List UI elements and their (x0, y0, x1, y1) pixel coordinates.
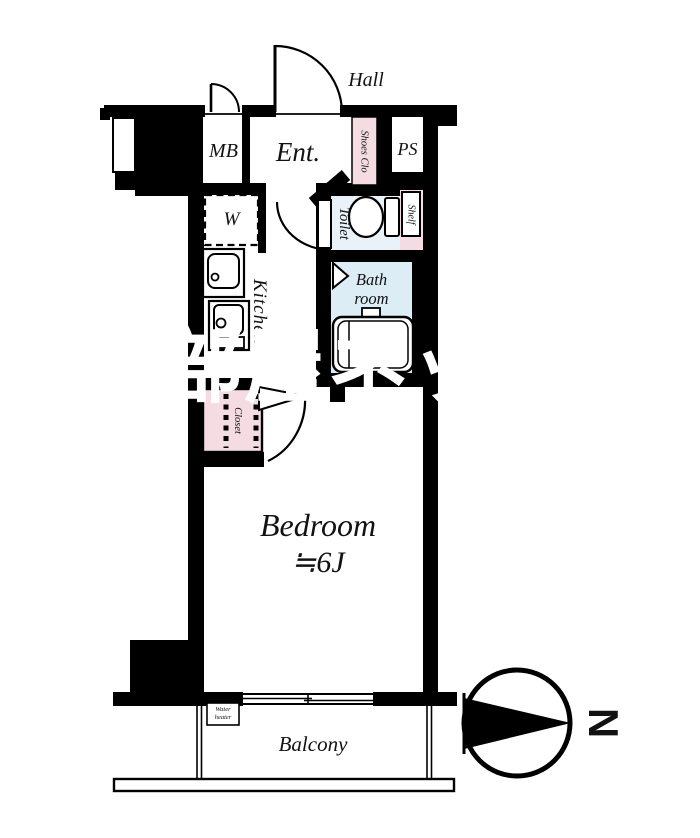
water-heater-box (207, 703, 239, 725)
neighbor-outline-box (113, 118, 135, 172)
wall-pillar-bottom-left (130, 640, 204, 694)
toilet-bowl (349, 197, 383, 237)
floor-plan-page: Hall MB Ent. Shoes Clo PS Toilet Shelf B… (0, 0, 700, 838)
wall-shoes-ps-divider (377, 117, 392, 190)
watermark-text: お部屋ネット (78, 300, 468, 419)
wall-closet-bottom (196, 452, 264, 467)
compass (464, 670, 571, 776)
balcony-front-rail (114, 779, 454, 791)
wall-step-left (115, 172, 135, 190)
wall-corridor-stub (258, 183, 266, 253)
ps-floor (392, 126, 423, 172)
mb-door-arc (211, 84, 239, 112)
kitchen-sink-drain (212, 274, 219, 281)
hallway-door-leaf (318, 200, 331, 248)
shoes-closet-box (352, 117, 377, 185)
washer-box (205, 195, 258, 245)
wall-bottom-right (373, 692, 457, 706)
shelf-box (402, 192, 420, 236)
wall-top-mid (242, 105, 276, 117)
mb-floor (203, 120, 243, 183)
kitchen-sink-basin (208, 254, 239, 288)
entrance-door-arc (275, 46, 342, 112)
wall-top-left (104, 105, 205, 117)
wall-under-ps (392, 172, 423, 190)
floor-plan-drawing (0, 0, 700, 838)
toilet-tank (385, 198, 399, 236)
